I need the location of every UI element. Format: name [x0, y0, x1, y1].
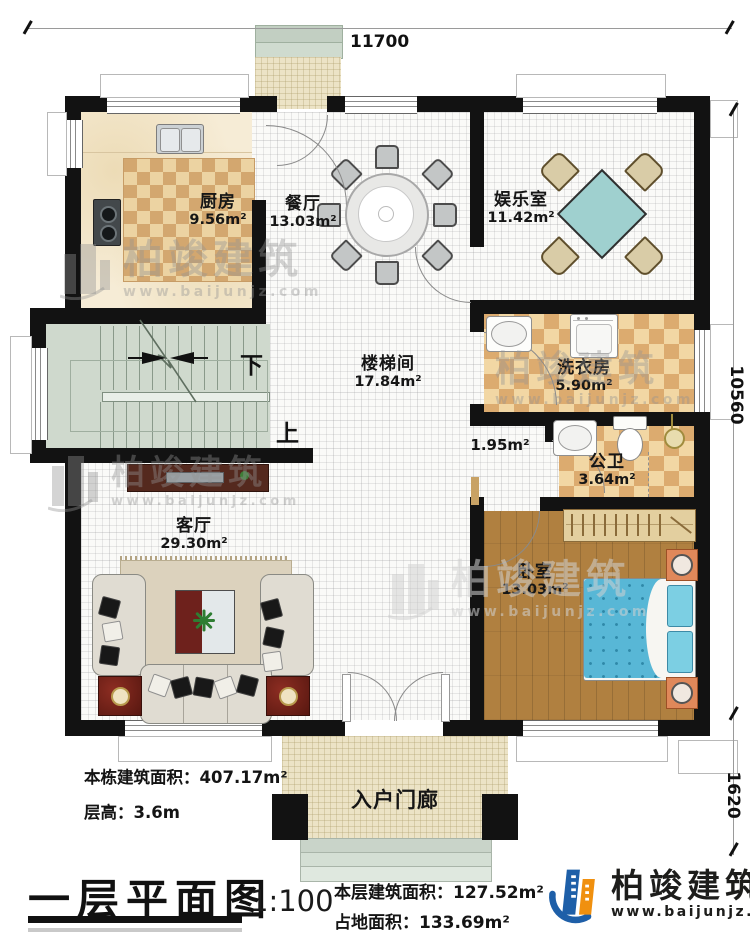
dining-chair — [375, 145, 399, 169]
window — [107, 96, 240, 114]
dimension-line-right — [733, 112, 734, 855]
room-name: 客厅 — [134, 516, 254, 536]
room-label-living: 客厅 29.30m² — [134, 516, 254, 554]
dining-chair — [375, 261, 399, 285]
window — [345, 96, 417, 114]
laundry-sink — [486, 316, 532, 352]
burner — [100, 206, 117, 223]
nightstand — [666, 549, 698, 581]
room-name: 洗衣房 — [524, 358, 644, 378]
room-label-bedroom: 卧室 13.03m² — [476, 562, 594, 600]
wall — [262, 720, 345, 736]
wall — [470, 505, 484, 736]
floor-height: 层高：3.6m — [84, 799, 180, 823]
kitchen-stove — [93, 199, 121, 246]
wall — [470, 314, 484, 332]
floor-lamp — [111, 687, 130, 706]
title-underline-shadow — [28, 928, 242, 932]
entry-door-panel — [342, 674, 351, 722]
wall — [470, 404, 484, 412]
burner — [100, 225, 117, 242]
room-area: 1.95m² — [450, 436, 550, 454]
dimension-top: 11700 — [350, 32, 409, 52]
room-label-dining: 餐厅 13.03m² — [245, 194, 361, 232]
company-logo-url: www.baijunjz.com — [611, 904, 750, 920]
sofa-pillow — [192, 676, 214, 698]
shower-hose — [671, 414, 673, 430]
tv-cabinet — [127, 464, 269, 492]
window — [523, 96, 657, 114]
stairs-down-label: 下 — [240, 346, 263, 380]
room-label-bathroom: 公卫 3.64m² — [548, 452, 666, 490]
dimension-right-lower: 1620 — [723, 755, 743, 835]
room-name: 餐厅 — [245, 194, 361, 214]
room-name: 入户门廊 — [330, 788, 460, 813]
porch-column — [272, 794, 308, 840]
window-sill — [516, 736, 668, 762]
washer-knob — [577, 317, 580, 320]
cabinet-plant — [240, 471, 249, 480]
entry-door-panel — [441, 674, 450, 722]
floor-lamp — [279, 687, 298, 706]
table-center — [378, 206, 394, 222]
room-area: 13.03m² — [245, 214, 361, 231]
wardrobe-rail — [566, 524, 693, 525]
hanger-diagonal — [670, 516, 692, 534]
dimension-right-upper: 10560 — [726, 355, 746, 435]
room-area: 3.64m² — [548, 472, 666, 489]
window-sill — [100, 74, 249, 98]
room-label-stairwell: 楼梯间 17.84m² — [328, 354, 448, 392]
room-label-laundry: 洗衣房 5.90m² — [524, 358, 644, 396]
door-frame-strip — [471, 477, 479, 505]
kitchen-sink — [156, 124, 204, 154]
room-area: 13.03m² — [476, 582, 594, 599]
wall — [694, 96, 710, 330]
window — [30, 348, 48, 440]
floor-area: 本层建筑面积：127.52m² — [334, 878, 544, 903]
room-label-corridor: 1.95m² — [450, 436, 550, 454]
room-name: 公卫 — [548, 452, 666, 472]
nightstand-lamp — [671, 554, 693, 576]
floor-plan-canvas: 下 上 — [0, 0, 750, 940]
wall — [240, 96, 277, 112]
wall — [327, 96, 345, 112]
room-label-porch: 入户门廊 — [330, 788, 460, 813]
porch-steps — [300, 838, 490, 880]
title-underline — [28, 916, 242, 923]
sink-bowl — [181, 128, 201, 152]
window-sill — [47, 112, 67, 176]
building-total-area: 本栋建筑面积：407.17m² — [84, 764, 288, 788]
pillow — [667, 631, 693, 673]
window-sill — [516, 74, 666, 98]
wardrobe — [563, 509, 696, 542]
wall — [30, 324, 46, 348]
nightstand — [666, 677, 698, 709]
room-name: 楼梯间 — [328, 354, 448, 374]
wall — [65, 96, 81, 120]
room-name: 卧室 — [476, 562, 594, 582]
basin — [491, 321, 527, 347]
window — [65, 120, 83, 168]
washer-panel — [573, 320, 613, 321]
bathroom-sink — [553, 420, 597, 456]
shower-head — [664, 428, 685, 449]
wall — [65, 463, 81, 736]
stairs-up-label: 上 — [276, 414, 299, 448]
hangers — [571, 514, 667, 536]
porch-floor — [282, 736, 508, 838]
nightstand-lamp — [671, 682, 693, 704]
corner-mat — [98, 676, 142, 716]
room-name: 娱乐室 — [466, 190, 576, 210]
washing-machine — [570, 314, 618, 358]
tv — [166, 472, 224, 483]
dining-chair — [433, 203, 457, 227]
basin — [558, 425, 592, 451]
corner-mat — [266, 676, 310, 716]
washer-knob — [585, 317, 588, 320]
window-sill — [10, 336, 32, 454]
company-logo-brand: 柏竣建筑 — [611, 868, 750, 904]
stair-break-line — [126, 318, 210, 404]
room-area: 29.30m² — [134, 536, 254, 553]
sofa-pillow — [262, 651, 283, 672]
company-logo-icon — [545, 862, 603, 926]
wall — [417, 96, 523, 112]
sofa-pillow — [99, 645, 120, 666]
company-logo: 柏竣建筑 www.baijunjz.com — [545, 862, 750, 926]
room-area: 5.90m² — [524, 378, 644, 395]
wall — [470, 300, 710, 314]
sofa-pillow — [262, 626, 285, 649]
room-label-entertainment: 娱乐室 11.42m² — [466, 190, 576, 228]
room-area: 11.42m² — [466, 210, 576, 227]
land-area: 占地面积：133.69m² — [334, 908, 510, 933]
porch-column — [482, 794, 518, 840]
dimension-line-top — [28, 28, 732, 29]
washer-lid — [576, 324, 612, 354]
window-sill — [118, 736, 272, 762]
sofa-pillow — [101, 620, 123, 642]
wall — [65, 168, 81, 308]
room-area: 17.84m² — [328, 374, 448, 391]
bed — [583, 578, 696, 681]
sink-bowl — [160, 128, 180, 152]
wall — [65, 720, 125, 736]
wall — [30, 448, 313, 463]
plan-scale: 1:100 — [250, 884, 334, 918]
pillow — [667, 585, 693, 627]
